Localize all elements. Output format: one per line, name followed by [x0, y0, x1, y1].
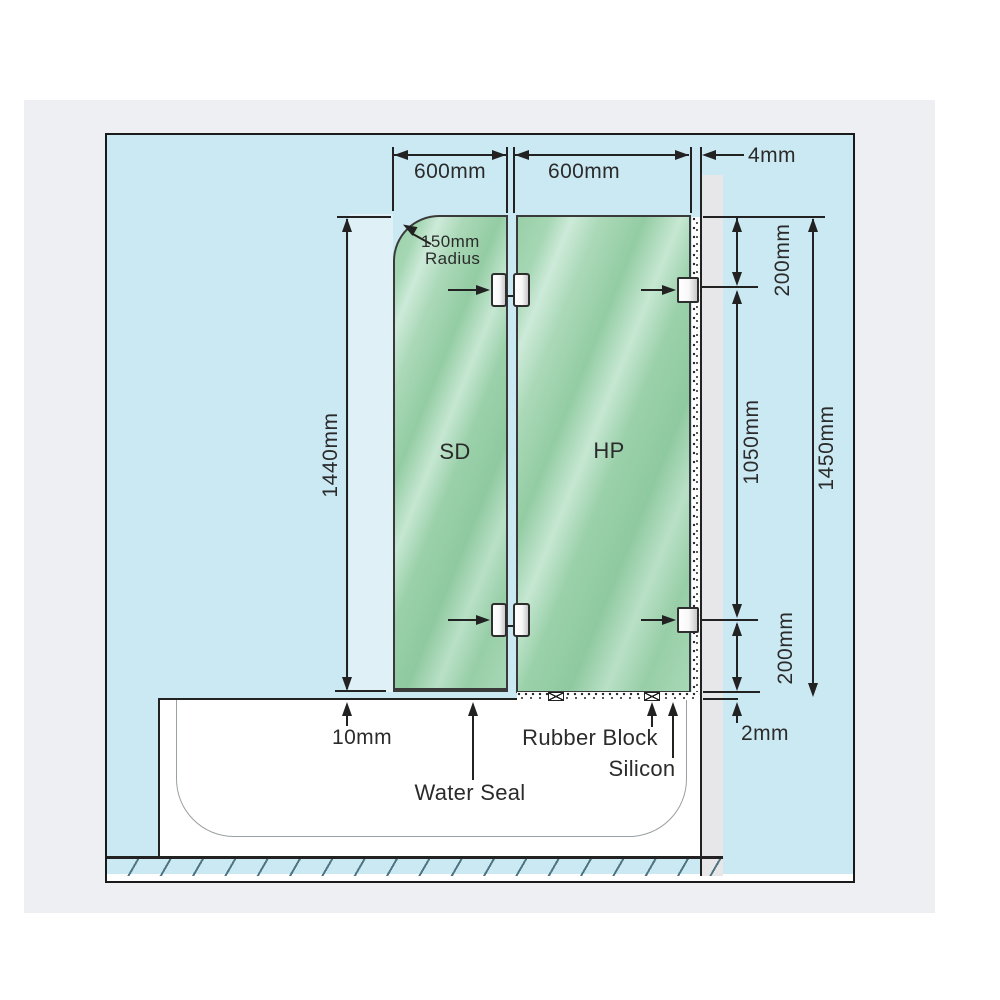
panel-label-sd: SD — [430, 439, 480, 465]
arrowhead — [342, 218, 352, 232]
light-band — [349, 214, 393, 692]
arrowhead — [732, 290, 742, 304]
hinge-bottom-left-pad — [491, 603, 507, 637]
ext-line-divider-left — [506, 147, 508, 213]
dim-text-1450: 1450mm — [815, 398, 837, 498]
arrowhead — [732, 622, 742, 636]
dim-text-1440: 1440mm — [319, 405, 341, 505]
arrowhead — [808, 218, 818, 232]
wall-bracket-bottom — [677, 607, 699, 633]
panel-label-hp: HP — [584, 438, 634, 464]
arrowhead — [515, 150, 529, 160]
silicon-bead-bottom — [517, 692, 700, 700]
ext-line-glass-right — [690, 147, 692, 213]
leader-line-silicon — [672, 714, 674, 758]
arrowhead — [476, 285, 490, 295]
label-rubber-block: Rubber Block — [515, 725, 665, 751]
label-silicon: Silicon — [567, 756, 717, 782]
arrowhead — [662, 615, 676, 625]
bathtub-left-line — [158, 698, 160, 858]
hinge-top-left-pad — [491, 273, 507, 307]
ref-line-bracket-top — [701, 286, 758, 288]
hinge-bottom-right-pad — [513, 603, 530, 637]
ref-line-tub-rim — [703, 698, 738, 700]
arrowhead — [342, 677, 352, 691]
arrowhead — [732, 272, 742, 286]
rubber-block-left — [548, 692, 564, 701]
dim-text-200-bottom: 200mm — [774, 608, 796, 688]
arrowhead — [732, 677, 742, 691]
hinge-bottom-pin — [507, 625, 513, 627]
arrowhead — [732, 604, 742, 618]
dim-text-2mm: 2mm — [741, 722, 789, 746]
dim-line-1440 — [346, 219, 348, 689]
dim-line-600-right — [515, 154, 689, 156]
floor-hatch — [107, 859, 723, 876]
leader-line-water-seal — [472, 714, 474, 780]
ref-line-wall-top — [703, 216, 825, 218]
arrowhead — [675, 150, 689, 160]
rubber-block-right — [644, 692, 660, 701]
dim-line-600-left — [394, 154, 506, 156]
arrowhead — [732, 218, 742, 232]
dim-text-600-right: 600mm — [534, 160, 634, 184]
arrowhead — [394, 150, 408, 160]
hinge-top-right-pad — [513, 273, 530, 307]
wall-bracket-top — [677, 277, 699, 303]
leader-line-10mm — [346, 714, 348, 726]
arrowhead — [702, 150, 716, 160]
dim-text-200-top: 200mm — [771, 220, 793, 300]
arrow-bracket-top — [641, 289, 664, 291]
arrowhead — [662, 285, 676, 295]
label-water-seal: Water Seal — [395, 780, 545, 806]
arrow-bracket-bottom — [641, 619, 664, 621]
dim-line-1450 — [812, 219, 814, 693]
dim-text-600-left: 600mm — [400, 160, 500, 184]
arrowhead — [476, 615, 490, 625]
dim-text-10mm: 10mm — [312, 726, 412, 750]
leader-line-4mm — [713, 154, 744, 156]
ref-line-bracket-bottom — [701, 619, 758, 621]
dim-text-4mm: 4mm — [748, 144, 796, 168]
hinge-top-pin — [507, 295, 513, 297]
ref-line-glass-bottom — [703, 691, 760, 693]
radius-note-line2: Radius — [425, 249, 480, 269]
arrowhead — [492, 150, 506, 160]
arrowhead — [808, 683, 818, 697]
product-diagram-image: SD HP 600mm 600mm 4mm 150mm Radius 1440m… — [0, 0, 1000, 1000]
leader-line-2mm — [736, 714, 738, 723]
dim-line-1050 — [736, 292, 738, 614]
dim-text-1050: 1050mm — [740, 392, 762, 492]
